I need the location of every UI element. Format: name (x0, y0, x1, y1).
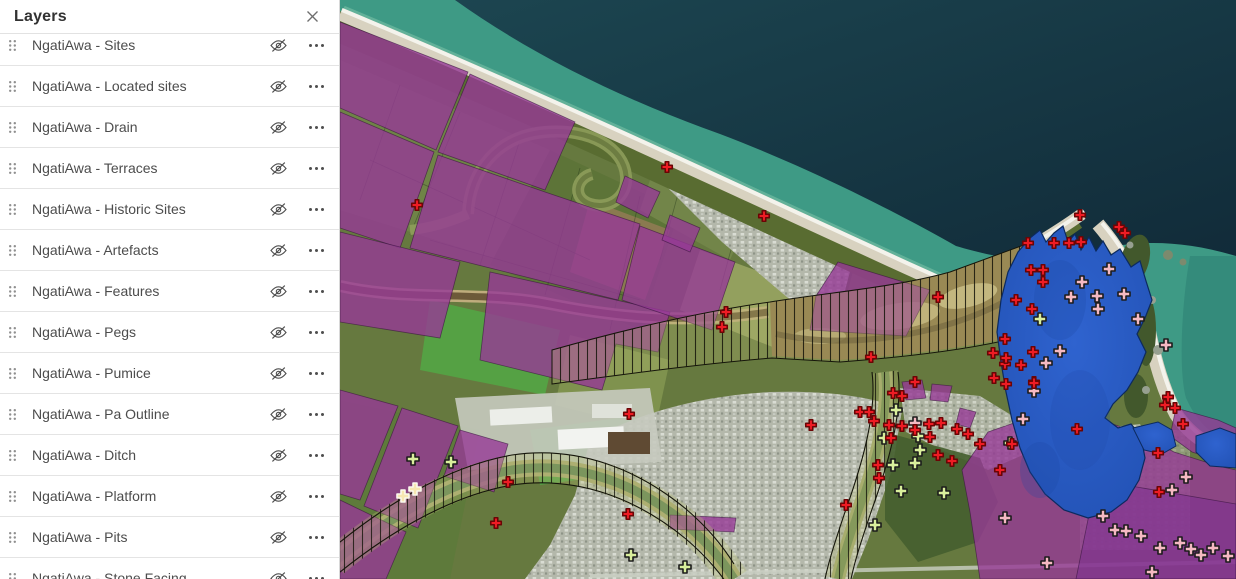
layer-options-button[interactable] (306, 246, 327, 255)
layer-options-button[interactable] (306, 328, 327, 337)
ellipsis-icon (308, 576, 325, 579)
layer-options-button[interactable] (306, 41, 327, 50)
layer-options-button[interactable] (306, 369, 327, 378)
layer-label: NgatiAwa - Platform (32, 488, 267, 504)
layer-label: NgatiAwa - Artefacts (32, 242, 267, 258)
layer-label: NgatiAwa - Stone Facing (32, 570, 267, 579)
eye-slash-icon (269, 325, 288, 340)
layer-options-button[interactable] (306, 410, 327, 419)
eye-slash-icon (269, 243, 288, 258)
layer-list-item[interactable]: NgatiAwa - Terraces (0, 148, 339, 189)
ellipsis-icon (308, 371, 325, 376)
layer-list-item[interactable]: NgatiAwa - Pegs (0, 312, 339, 353)
drag-handle-icon[interactable] (8, 449, 18, 462)
layer-list-item[interactable]: NgatiAwa - Historic Sites (0, 189, 339, 230)
ellipsis-icon (308, 166, 325, 171)
eye-slash-icon (269, 407, 288, 422)
visibility-toggle-button[interactable] (267, 569, 290, 579)
drag-handle-icon[interactable] (8, 326, 18, 339)
layers-panel: Layers NgatiAwa - Sites (0, 0, 340, 579)
layer-label: NgatiAwa - Features (32, 283, 267, 299)
ellipsis-icon (308, 207, 325, 212)
layer-label: NgatiAwa - Located sites (32, 78, 267, 94)
layer-label: NgatiAwa - Historic Sites (32, 201, 267, 217)
layer-label: NgatiAwa - Pumice (32, 365, 267, 381)
layer-options-button[interactable] (306, 574, 327, 579)
layer-list-item[interactable]: NgatiAwa - Sites (0, 33, 339, 66)
visibility-toggle-button[interactable] (267, 364, 290, 383)
layer-list: NgatiAwa - Sites (0, 33, 339, 579)
eye-slash-icon (269, 79, 288, 94)
layer-label: NgatiAwa - Pits (32, 529, 267, 545)
drag-handle-icon[interactable] (8, 121, 18, 134)
visibility-toggle-button[interactable] (267, 282, 290, 301)
layer-list-item[interactable]: NgatiAwa - Stone Facing (0, 558, 339, 579)
eye-slash-icon (269, 161, 288, 176)
eye-slash-icon (269, 489, 288, 504)
visibility-toggle-button[interactable] (267, 200, 290, 219)
eye-slash-icon (269, 120, 288, 135)
eye-slash-icon (269, 448, 288, 463)
drag-handle-icon[interactable] (8, 39, 18, 52)
drag-handle-icon[interactable] (8, 244, 18, 257)
satellite-map[interactable] (340, 0, 1236, 579)
ellipsis-icon (308, 289, 325, 294)
panel-title: Layers (14, 8, 301, 26)
layer-label: NgatiAwa - Ditch (32, 447, 267, 463)
layers-panel-header: Layers (0, 0, 339, 34)
visibility-toggle-button[interactable] (267, 487, 290, 506)
layer-list-item[interactable]: NgatiAwa - Features (0, 271, 339, 312)
ellipsis-icon (308, 125, 325, 130)
x-icon (306, 10, 319, 23)
layer-list-item[interactable]: NgatiAwa - Ditch (0, 435, 339, 476)
layer-options-button[interactable] (306, 287, 327, 296)
visibility-toggle-button[interactable] (267, 446, 290, 465)
eye-slash-icon (269, 530, 288, 545)
drag-handle-icon[interactable] (8, 408, 18, 421)
drag-handle-icon[interactable] (8, 572, 18, 579)
ellipsis-icon (308, 43, 325, 48)
drag-handle-icon[interactable] (8, 285, 18, 298)
layer-list-item[interactable]: NgatiAwa - Drain (0, 107, 339, 148)
layer-list-item[interactable]: NgatiAwa - Pa Outline (0, 394, 339, 435)
layer-list-item[interactable]: NgatiAwa - Pits (0, 517, 339, 558)
layer-options-button[interactable] (306, 205, 327, 214)
eye-slash-icon (269, 38, 288, 53)
layer-list-item[interactable]: NgatiAwa - Artefacts (0, 230, 339, 271)
visibility-toggle-button[interactable] (267, 323, 290, 342)
layer-label: NgatiAwa - Pa Outline (32, 406, 267, 422)
layer-options-button[interactable] (306, 82, 327, 91)
drag-handle-icon[interactable] (8, 367, 18, 380)
drag-handle-icon[interactable] (8, 531, 18, 544)
layer-label: NgatiAwa - Pegs (32, 324, 267, 340)
layer-options-button[interactable] (306, 123, 327, 132)
visibility-toggle-button[interactable] (267, 159, 290, 178)
layer-options-button[interactable] (306, 451, 327, 460)
eye-slash-icon (269, 284, 288, 299)
visibility-toggle-button[interactable] (267, 36, 290, 55)
ellipsis-icon (308, 330, 325, 335)
layer-label: NgatiAwa - Sites (32, 37, 267, 53)
drag-handle-icon[interactable] (8, 490, 18, 503)
layer-options-button[interactable] (306, 164, 327, 173)
layer-list-item[interactable]: NgatiAwa - Platform (0, 476, 339, 517)
layer-label: NgatiAwa - Terraces (32, 160, 267, 176)
eye-slash-icon (269, 366, 288, 381)
eye-slash-icon (269, 571, 288, 579)
ellipsis-icon (308, 494, 325, 499)
drag-handle-icon[interactable] (8, 203, 18, 216)
visibility-toggle-button[interactable] (267, 405, 290, 424)
layer-list-item[interactable]: NgatiAwa - Located sites (0, 66, 339, 107)
eye-slash-icon (269, 202, 288, 217)
visibility-toggle-button[interactable] (267, 241, 290, 260)
visibility-toggle-button[interactable] (267, 77, 290, 96)
ellipsis-icon (308, 248, 325, 253)
ellipsis-icon (308, 84, 325, 89)
layer-options-button[interactable] (306, 533, 327, 542)
map-view[interactable] (340, 0, 1236, 579)
ellipsis-icon (308, 453, 325, 458)
drag-handle-icon[interactable] (8, 162, 18, 175)
ellipsis-icon (308, 412, 325, 417)
ellipsis-icon (308, 535, 325, 540)
visibility-toggle-button[interactable] (267, 528, 290, 547)
layer-options-button[interactable] (306, 492, 327, 501)
layer-label: NgatiAwa - Drain (32, 119, 267, 135)
visibility-toggle-button[interactable] (267, 118, 290, 137)
close-panel-button[interactable] (301, 6, 323, 28)
layer-list-item[interactable]: NgatiAwa - Pumice (0, 353, 339, 394)
drag-handle-icon[interactable] (8, 80, 18, 93)
